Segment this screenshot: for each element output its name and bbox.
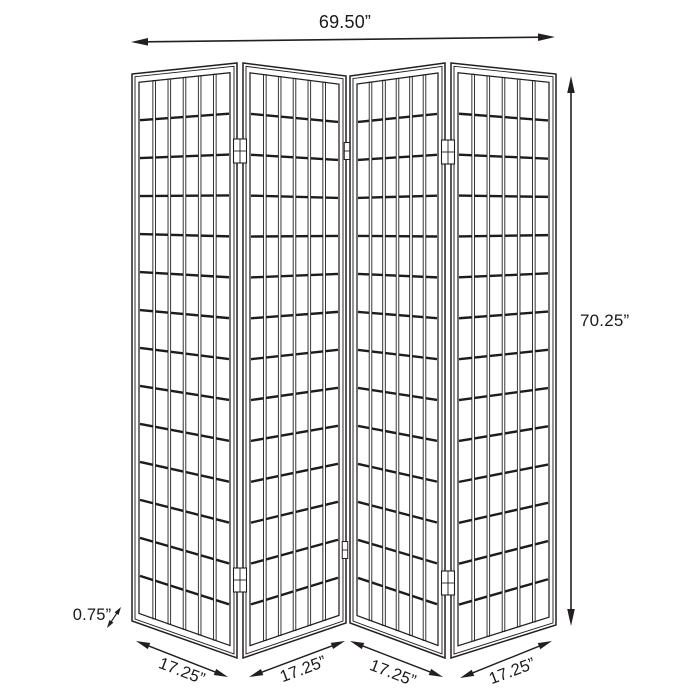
hinge-6 [442,571,455,595]
height-dimension-arrow [567,76,575,626]
hinge-3 [344,143,350,160]
diagram-canvas: 69.50” 70.25” 0.75” 17.25” 17.25” 17.25”… [0,0,700,700]
panel-grid [140,74,229,640]
width-dimension-label: 69.50” [319,12,371,32]
height-dimension: 70.25” [567,76,629,626]
panel-grid [459,74,548,641]
panel-grid [358,75,437,641]
room-divider-dimension-diagram: 69.50” 70.25” 0.75” 17.25” 17.25” 17.25”… [0,0,700,700]
hinge-5 [442,140,455,164]
hinge-2 [234,568,247,592]
screen-panel-2 [243,63,346,658]
width-dimension-arrow [131,33,555,45]
panel-width-dimension-3: 17.25” [350,641,443,690]
thickness-dimension-label: 0.75” [73,606,112,624]
panel-grid [251,75,338,641]
screen-panel-3 [350,63,445,658]
width-dimension: 69.50” [131,12,555,46]
panel-width-label-4: 17.25” [487,654,538,688]
screen-panel-1 [132,63,237,658]
panel-width-label-2: 17.25” [278,652,329,686]
panel-width-dimension-1: 17.25” [136,641,228,688]
hinge-1 [234,139,247,163]
thickness-dimension: 0.75” [73,606,121,628]
height-dimension-label: 70.25” [580,311,630,330]
screen-panel-4 [451,63,556,658]
folding-screen-drawing [132,63,556,658]
hinge-4 [342,542,348,559]
panel-width-label-3: 17.25” [367,656,418,690]
